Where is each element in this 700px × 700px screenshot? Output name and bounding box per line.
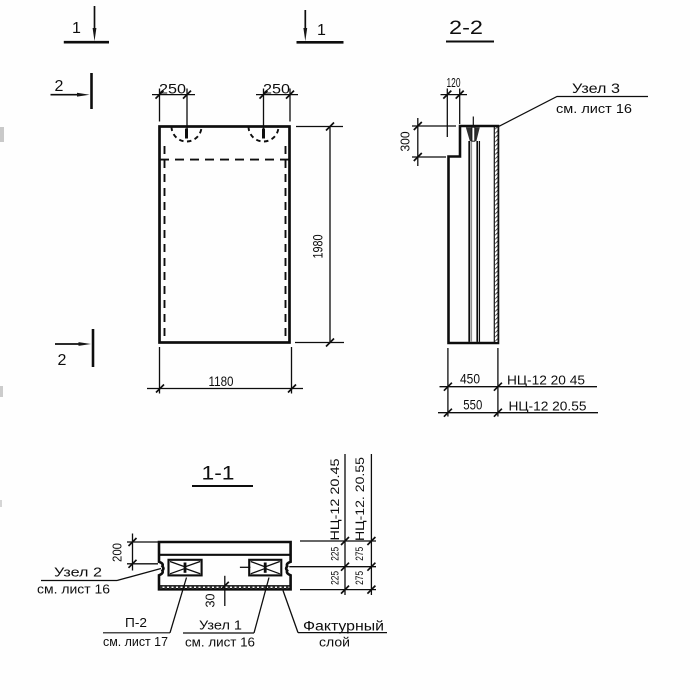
svg-text:см. лист 16: см. лист 16 <box>556 102 632 116</box>
svg-text:НЦ-12 20.55: НЦ-12 20.55 <box>509 399 587 414</box>
svg-text:П-2: П-2 <box>125 616 147 630</box>
svg-text:Узел 1: Узел 1 <box>199 618 242 633</box>
svg-text:Фактурный: Фактурный <box>303 619 384 634</box>
svg-text:НЦ-12 20.45: НЦ-12 20.45 <box>328 458 342 540</box>
svg-text:см. лист 16: см. лист 16 <box>185 636 255 650</box>
svg-text:275: 275 <box>354 571 366 585</box>
svg-text:225: 225 <box>330 547 342 561</box>
svg-text:120: 120 <box>447 75 461 90</box>
svg-text:НЦ-12 20 45: НЦ-12 20 45 <box>507 373 585 388</box>
svg-text:2-2: 2-2 <box>449 18 483 39</box>
svg-text:НЦ-12. 20.55: НЦ-12. 20.55 <box>353 457 367 541</box>
svg-text:2: 2 <box>55 78 64 95</box>
svg-text:550: 550 <box>463 398 482 413</box>
svg-text:200: 200 <box>111 543 125 562</box>
svg-text:Узел 3: Узел 3 <box>572 81 620 96</box>
svg-text:225: 225 <box>330 571 342 585</box>
svg-text:1: 1 <box>72 20 81 37</box>
svg-text:1180: 1180 <box>209 374 234 389</box>
svg-text:2: 2 <box>58 352 67 369</box>
svg-text:слой: слой <box>319 635 350 650</box>
svg-text:250: 250 <box>263 82 290 97</box>
svg-text:300: 300 <box>399 131 413 151</box>
svg-text:250: 250 <box>159 82 186 97</box>
svg-text:1: 1 <box>317 22 326 39</box>
svg-text:1-1: 1-1 <box>202 464 235 485</box>
svg-text:1980: 1980 <box>311 235 326 259</box>
svg-text:Узел 2: Узел 2 <box>54 565 102 580</box>
svg-text:30: 30 <box>204 593 218 607</box>
svg-text:275: 275 <box>354 547 366 561</box>
svg-text:450: 450 <box>460 372 480 387</box>
svg-text:см. лист 17: см. лист 17 <box>103 635 168 649</box>
svg-text:см. лист 16: см. лист 16 <box>37 583 110 597</box>
